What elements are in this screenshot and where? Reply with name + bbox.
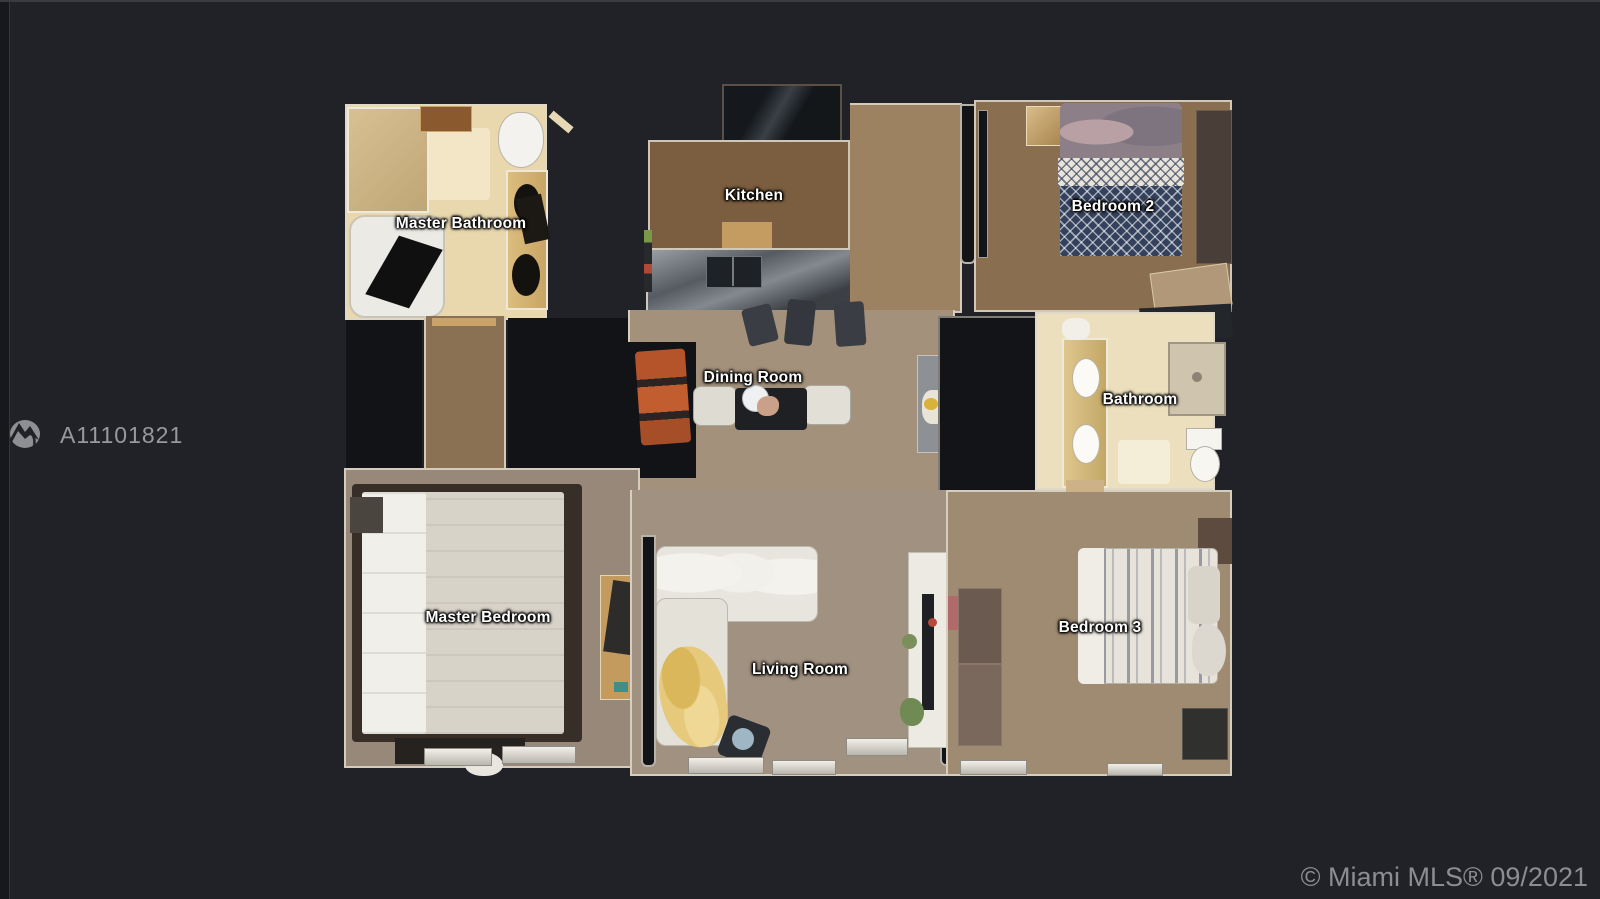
mls-id: A11101821 [60,422,183,449]
desk-item [614,682,628,692]
window-sill [960,760,1027,775]
window-sill [424,748,492,766]
top-edge-line [0,0,1600,2]
door [548,111,573,134]
table-item [757,396,779,416]
orange-chairs [635,348,691,445]
room-label-dining-room: Dining Room [704,369,803,387]
bed-blanket [1060,186,1182,256]
kitchen-items [644,230,652,292]
bathtub-shadow [365,236,442,309]
bed-sheet-trim [1058,158,1184,186]
tv [922,594,934,710]
shower-drain [1192,372,1202,382]
nightstand [350,497,383,533]
kitchen-sink-divider [732,257,734,286]
mountain-circle-logo-icon [6,416,48,462]
unscanned-void [346,320,422,470]
window-sill [846,738,908,756]
sink [1072,424,1100,464]
sink [1072,358,1100,398]
nightstand [1026,106,1062,146]
room-label-bedroom-3: Bedroom 3 [1059,619,1142,637]
room-label-bathroom: Bathroom [1103,391,1178,409]
wall-slot [978,110,988,258]
dining-chair [803,385,851,425]
bath-rug [1118,440,1170,484]
bench [1182,708,1228,760]
dining-chair [693,386,737,426]
bed-foot [1078,548,1104,684]
wall-slot [641,535,656,767]
floorplan-photo: Master Bathroom Kitchen Bedroom 2 Dining… [0,0,1600,899]
bed-pillows [1188,566,1220,624]
desk-item [924,398,938,410]
console-item [928,618,937,627]
watermark: © Miami MLS® 09/2021 [1301,862,1588,893]
window-sill [502,746,576,764]
room-label-master-bedroom: Master Bedroom [425,609,550,627]
room-label-living-room: Living Room [752,661,848,679]
hallway-floor [424,316,506,474]
plant [902,634,917,649]
door-threshold [432,318,496,326]
room-label-master-bathroom: Master Bathroom [396,215,526,233]
window-sill [688,757,764,774]
plant [900,698,924,726]
dining-chair [784,299,817,347]
toilet [498,112,544,168]
kitchen-sink [706,256,762,288]
window-sill [772,760,836,775]
bathroom-item [1062,318,1090,340]
toilet [1190,446,1220,482]
room-label-kitchen: Kitchen [725,187,783,205]
cutting-board [722,222,772,248]
room-label-bedroom-2: Bedroom 2 [1072,198,1155,216]
floor-item [1192,624,1226,676]
closet-item [1066,480,1104,492]
dresser [958,664,1002,746]
sink [512,254,540,296]
side-table-glass [732,728,754,750]
dresser [958,588,1002,664]
floor-item [948,596,958,630]
shower [347,107,429,213]
bed-pillows [1060,103,1182,161]
dining-chair [834,301,867,347]
window-sill [1107,763,1163,776]
foyer-floor [850,103,962,313]
shelf [420,106,472,132]
wardrobe [1196,110,1232,264]
